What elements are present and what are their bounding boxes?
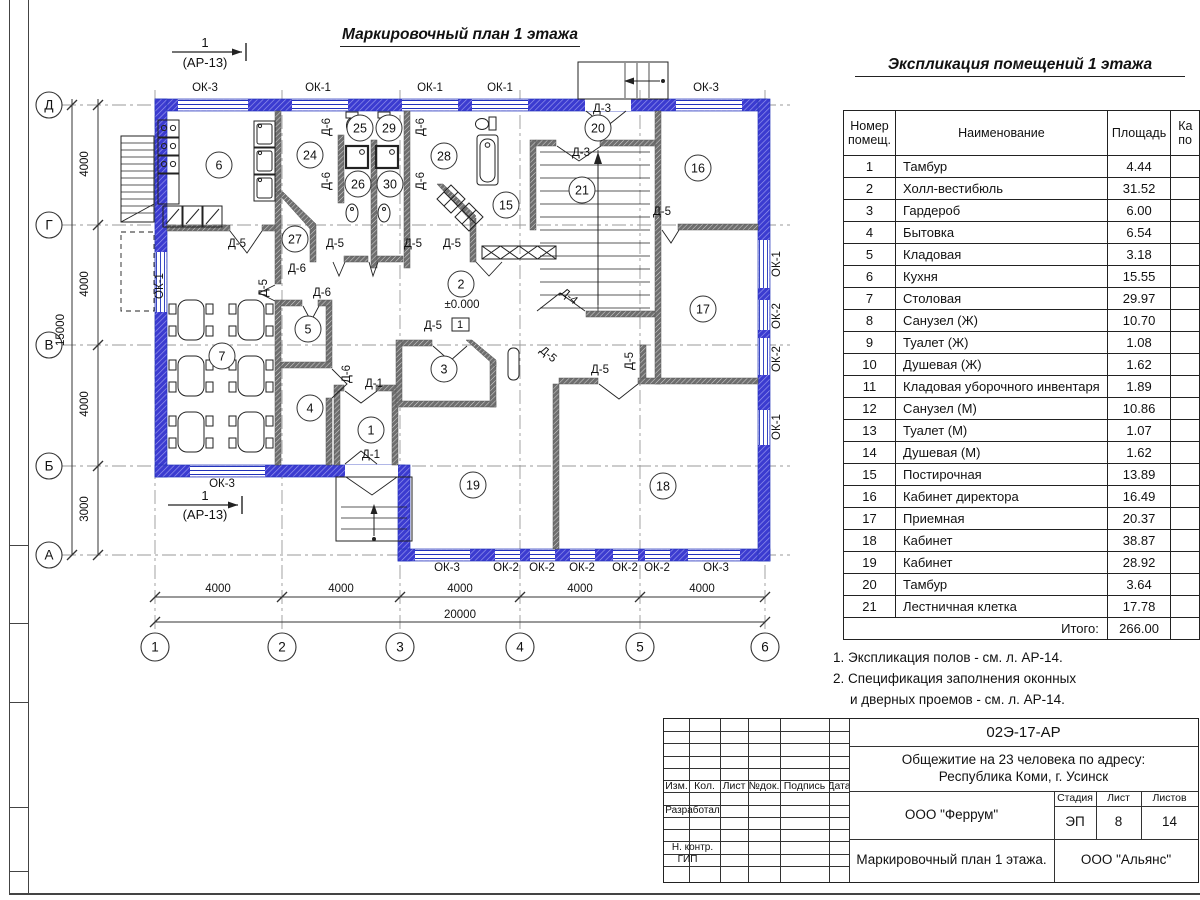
room-name-cell: Приемная <box>896 508 1108 530</box>
tap <box>258 151 261 154</box>
axis-label: Б <box>45 459 54 474</box>
plan-label: ОК-2 <box>612 562 638 574</box>
door-opening <box>345 465 398 477</box>
porch-arrowhead <box>371 504 378 514</box>
chair <box>229 416 236 426</box>
room-name-cell: Душевая (М) <box>896 442 1108 464</box>
plan-label: ОК-3 <box>703 562 729 574</box>
interior-wall <box>559 378 598 384</box>
plan-label: ОК-3 <box>693 82 719 94</box>
table-row: 2Холл-вестибюль31.52 <box>844 178 1200 200</box>
room-area-cell: 31.52 <box>1107 178 1170 200</box>
room-name-cell: Холл-вестибюль <box>896 178 1108 200</box>
interior-wall <box>536 140 556 146</box>
plan-label: ОК-3 <box>434 562 460 574</box>
chair <box>206 304 213 314</box>
room-no-cell: 15 <box>844 464 896 486</box>
chair <box>169 304 176 314</box>
room-area-cell: 29.97 <box>1107 288 1170 310</box>
chair <box>169 438 176 448</box>
chair <box>206 326 213 336</box>
door-leaf <box>333 262 345 276</box>
room-no-cell: 6 <box>844 266 896 288</box>
interior-wall <box>377 256 403 262</box>
room-cut-cell <box>1171 398 1200 420</box>
plan-label: Д-5 <box>653 206 671 218</box>
room-area-cell: 20.37 <box>1107 508 1170 530</box>
axis-label: 2 <box>278 640 286 655</box>
section-marker-arrow <box>228 502 238 509</box>
interior-wall <box>655 111 661 384</box>
door-leaf <box>345 391 377 403</box>
plan-label: Д-6 <box>321 172 333 190</box>
room-area-cell: 4.44 <box>1107 156 1170 178</box>
radiator <box>508 348 519 380</box>
sheet-title: Маркировочный план 1 этажа. <box>849 839 1054 882</box>
tap <box>351 208 354 211</box>
interior-wall <box>281 300 302 306</box>
interior-wall <box>490 362 496 407</box>
interior-wall <box>553 384 559 549</box>
plan-label: ОК-3 <box>209 478 235 490</box>
axis-label: В <box>44 338 53 353</box>
total-label: Итого: <box>844 618 1108 640</box>
plan-label: Д-5 <box>228 238 246 250</box>
room-cut-cell <box>1171 156 1200 178</box>
chair <box>266 304 273 314</box>
room-no-cell: 12 <box>844 398 896 420</box>
chair <box>169 360 176 370</box>
table-row: 3Гардероб6.00 <box>844 200 1200 222</box>
plan-label: Д-6 <box>415 172 427 190</box>
room-name-cell: Бытовка <box>896 222 1108 244</box>
plan-label: 4000 <box>447 583 473 595</box>
floor-plan: ДГВБА123456 1234567151617181920212425262… <box>0 0 820 680</box>
room-name-cell: Санузел (Ж) <box>896 310 1108 332</box>
stage-value: ЭП <box>1054 806 1096 839</box>
plan-label: Д-5 <box>258 279 270 297</box>
title-block: Изм.Кол.Лист№док.ПодписьДатаРазработалН.… <box>663 718 1199 883</box>
sheets-label: Листов <box>1141 791 1198 806</box>
room-number: 20 <box>591 121 605 135</box>
arrow-dot <box>372 537 376 541</box>
axis-label: А <box>44 548 53 563</box>
stage-label: Стадия <box>1054 791 1096 806</box>
interior-wall <box>326 306 332 362</box>
room-number: 28 <box>437 149 451 163</box>
room-number: 4 <box>307 401 314 415</box>
dashed-platform <box>121 232 154 311</box>
tap <box>258 178 261 181</box>
plan-label: Д-5 <box>404 238 422 250</box>
plan-label: Д-6 <box>288 263 306 275</box>
plan-label: Д-6 <box>313 287 331 299</box>
table-row: 17Приемная20.37 <box>844 508 1200 530</box>
room-cut-cell <box>1171 354 1200 376</box>
interior-wall <box>638 378 758 384</box>
room-name-cell: Туалет (Ж) <box>896 332 1108 354</box>
room-area-cell: 16.49 <box>1107 486 1170 508</box>
room-area-cell: 13.89 <box>1107 464 1170 486</box>
interior-wall <box>600 140 655 146</box>
axis-label: Д <box>44 98 53 113</box>
exterior-stair <box>121 136 154 222</box>
contractor-org: ООО "Альянс" <box>1054 839 1198 882</box>
room-no-cell: 17 <box>844 508 896 530</box>
room-number: 5 <box>305 322 312 336</box>
title-block-line <box>664 866 849 867</box>
interior-wall <box>640 345 646 378</box>
room-no-cell: 20 <box>844 574 896 596</box>
frame-margin-line <box>9 702 28 703</box>
drain <box>360 150 365 155</box>
interior-wall <box>318 300 332 306</box>
frame-bottom <box>9 893 1200 895</box>
plan-label: 3000 <box>79 496 91 522</box>
basin <box>378 204 390 222</box>
title-block-line <box>664 756 849 757</box>
role-label: ГИП <box>665 854 710 866</box>
table-row: 1Тамбур4.44 <box>844 156 1200 178</box>
room-number: 29 <box>382 121 396 135</box>
interior-wall <box>396 401 496 407</box>
room-no-cell: 7 <box>844 288 896 310</box>
room-no-cell: 21 <box>844 596 896 618</box>
chair <box>229 382 236 392</box>
section-marker-arrow <box>232 49 242 56</box>
room-area-cell: 1.62 <box>1107 442 1170 464</box>
signature-col-header: Лист <box>720 780 748 793</box>
table-row: 8Санузел (Ж)10.70 <box>844 310 1200 332</box>
interior-wall <box>530 140 536 230</box>
chair <box>206 438 213 448</box>
interior-wall-diagonal <box>466 340 496 367</box>
plan-label: 4000 <box>79 391 91 417</box>
interior-wall <box>334 391 340 465</box>
counter-hatch <box>166 209 179 224</box>
chair <box>229 326 236 336</box>
document-code: 02Э-17-АР <box>849 719 1198 746</box>
room-cut-cell <box>1171 376 1200 398</box>
room-number: 24 <box>303 148 317 162</box>
room-name-cell: Санузел (М) <box>896 398 1108 420</box>
table-row: 4Бытовка6.54 <box>844 222 1200 244</box>
axis-label: 5 <box>636 640 644 655</box>
room-cut-cell <box>1171 530 1200 552</box>
plan-label: Д-5 <box>443 238 461 250</box>
room-name-cell: Столовая <box>896 288 1108 310</box>
door-leaf <box>476 262 502 276</box>
title-block-line <box>664 768 849 769</box>
table-row: 14Душевая (М)1.62 <box>844 442 1200 464</box>
room-area-cell: 1.08 <box>1107 332 1170 354</box>
room-number: 21 <box>575 183 589 197</box>
axis-label: Г <box>45 218 53 233</box>
col-header-name: Наименование <box>896 111 1108 156</box>
room-cut-cell <box>1171 222 1200 244</box>
title-block-line <box>664 731 849 732</box>
room-area-cell: 10.86 <box>1107 398 1170 420</box>
chair <box>266 416 273 426</box>
table-row: 11Кладовая уборочного инвентаря1.89 <box>844 376 1200 398</box>
interior-wall <box>275 300 281 465</box>
drain <box>485 143 490 148</box>
table-row: 21Лестничная клетка17.78 <box>844 596 1200 618</box>
interior-wall <box>344 256 368 262</box>
object-name: Общежитие на 23 человека по адресу:Респу… <box>849 746 1198 791</box>
interior-wall <box>281 362 332 368</box>
room-cut-cell <box>1171 266 1200 288</box>
room-cut-cell <box>1171 332 1200 354</box>
room-cut-cell <box>1171 486 1200 508</box>
title-block-line <box>664 817 849 818</box>
bathtub-inner <box>480 139 495 182</box>
axis-label: 4 <box>516 640 524 655</box>
counter-hatch <box>186 209 199 224</box>
chair <box>266 326 273 336</box>
axis-label: 1 <box>151 640 159 655</box>
col-header-area: Площадь <box>1107 111 1170 156</box>
table-row: 19Кабинет28.92 <box>844 552 1200 574</box>
room-area-cell: 15.55 <box>1107 266 1170 288</box>
shower-tray <box>346 146 368 168</box>
chair <box>206 382 213 392</box>
plan-label: ОК-3 <box>192 82 218 94</box>
signature-col-header: Дата <box>829 780 849 793</box>
room-no-cell: 18 <box>844 530 896 552</box>
note-line: 1. Экспликация полов - см. л. АР-14. <box>833 648 1173 669</box>
table <box>178 300 204 340</box>
room-cut-cell <box>1171 574 1200 596</box>
chair <box>206 416 213 426</box>
room-cut-cell <box>1171 288 1200 310</box>
table-row: 13Туалет (М)1.07 <box>844 420 1200 442</box>
porch-arrowhead <box>624 78 634 85</box>
shower-tray <box>376 146 398 168</box>
role-label: Разработал <box>665 805 720 817</box>
room-number: 18 <box>656 479 670 493</box>
plan-label: 4000 <box>205 583 231 595</box>
counter-hatch <box>206 209 219 224</box>
room-cut-cell <box>1171 596 1200 618</box>
axis-label: 3 <box>396 640 404 655</box>
room-no-cell: 14 <box>844 442 896 464</box>
sheet: { "sheet":{ "plan_title":"Маркировочный … <box>0 0 1200 900</box>
room-no-cell: 13 <box>844 420 896 442</box>
designer-org: ООО "Феррум" <box>849 791 1054 839</box>
room-no-cell: 8 <box>844 310 896 332</box>
room-number: 25 <box>353 121 367 135</box>
plan-label: 4000 <box>79 271 91 297</box>
room-area-cell: 17.78 <box>1107 596 1170 618</box>
room-number: 1 <box>368 423 375 437</box>
plan-label: 4000 <box>567 583 593 595</box>
signature-col-header: Подпись <box>780 780 829 793</box>
total-value: 266.00 <box>1107 618 1170 640</box>
room-no-cell: 1 <box>844 156 896 178</box>
plan-label: ОК-2 <box>493 562 519 574</box>
room-name-cell: Гардероб <box>896 200 1108 222</box>
room-number: 6 <box>216 158 223 172</box>
room-name-cell: Постирочная <box>896 464 1108 486</box>
room-name-cell: Кладовая уборочного инвентаря <box>896 376 1108 398</box>
signature-col-header: Изм. <box>664 780 689 793</box>
note-line: 2. Спецификация заполнения оконных <box>833 669 1173 690</box>
tap <box>383 208 386 211</box>
room-number: 15 <box>499 198 513 212</box>
plan-label: Д-6 <box>321 118 333 136</box>
plan-label: 1 <box>457 319 463 331</box>
plan-label: ±0.000 <box>444 299 479 311</box>
room-area-cell: 28.92 <box>1107 552 1170 574</box>
door-leaf <box>662 230 679 243</box>
room-cut-cell <box>1171 310 1200 332</box>
room-number: 3 <box>441 362 448 376</box>
plan-label: ОК-1 <box>154 273 166 299</box>
table-row: 7Столовая29.97 <box>844 288 1200 310</box>
toilet-tank <box>489 117 496 130</box>
room-number: 19 <box>466 478 480 492</box>
door-leaf <box>599 384 638 399</box>
plan-label: 15000 <box>55 314 67 346</box>
plan-label: Д-6 <box>415 118 427 136</box>
room-no-cell: 16 <box>844 486 896 508</box>
chair <box>169 416 176 426</box>
table-total-row: Итого: 266.00 <box>844 618 1200 640</box>
room-no-cell: 19 <box>844 552 896 574</box>
room-no-cell: 2 <box>844 178 896 200</box>
room-no-cell: 10 <box>844 354 896 376</box>
plan-label: ОК-1 <box>771 251 783 277</box>
table-row: 5Кладовая3.18 <box>844 244 1200 266</box>
chair <box>266 438 273 448</box>
signature-col-header: Кол. <box>689 780 720 793</box>
table-title: Экспликация помещений 1 этажа <box>855 56 1185 77</box>
plan-label: 4000 <box>328 583 354 595</box>
plan-label: Д-3 <box>572 147 590 159</box>
room-area-cell: 3.64 <box>1107 574 1170 596</box>
basin <box>346 204 358 222</box>
room-no-cell: 5 <box>844 244 896 266</box>
room-area-cell: 1.89 <box>1107 376 1170 398</box>
plan-label: 1 <box>201 35 208 50</box>
plan-label: 1 <box>201 488 208 503</box>
plan-label: ОК-2 <box>771 303 783 329</box>
plan-label: Д-5 <box>326 238 344 250</box>
notes: 1. Экспликация полов - см. л. АР-14.2. С… <box>833 648 1173 711</box>
room-area-cell: 1.62 <box>1107 354 1170 376</box>
note-line: и дверных проемов - см. л. АР-14. <box>850 690 1173 711</box>
interior-wall <box>310 225 316 262</box>
plan-label: Д-1 <box>365 378 383 390</box>
plan-label: ОК-2 <box>529 562 555 574</box>
plan-label: ОК-2 <box>644 562 670 574</box>
room-cut-cell <box>1171 442 1200 464</box>
room-no-cell: 3 <box>844 200 896 222</box>
room-schedule-table: Номер помещ. Наименование Площадь Капо 1… <box>843 110 1200 640</box>
room-area-cell: 6.00 <box>1107 200 1170 222</box>
room-name-cell: Кабинет директора <box>896 486 1108 508</box>
room-name-cell: Лестничная клетка <box>896 596 1108 618</box>
plan-label: Д-5 <box>624 352 636 370</box>
room-area-cell: 10.70 <box>1107 310 1170 332</box>
room-cut-cell <box>1171 244 1200 266</box>
axis-grid: ДГВБА123456 <box>36 90 790 661</box>
plan-label: ОК-1 <box>771 414 783 440</box>
drain <box>390 150 395 155</box>
interior-wall <box>275 192 281 284</box>
door-leaf <box>346 477 397 495</box>
room-no-cell: 11 <box>844 376 896 398</box>
room-cut-cell <box>1171 178 1200 200</box>
interior-wall <box>326 398 332 465</box>
burner <box>170 143 175 148</box>
room-name-cell: Кабинет <box>896 552 1108 574</box>
interior-wall <box>586 311 655 317</box>
room-number: 2 <box>458 277 465 291</box>
chair <box>229 438 236 448</box>
interior-wall <box>275 111 281 192</box>
chair <box>229 304 236 314</box>
frame-margin-line <box>9 871 28 872</box>
room-cut-cell <box>1171 464 1200 486</box>
plan-label: Д-3 <box>593 103 611 115</box>
arrow-dot <box>661 79 665 83</box>
exterior-wall <box>398 465 410 561</box>
chair <box>169 382 176 392</box>
table <box>178 412 204 452</box>
title-block-line <box>664 829 849 830</box>
room-area-cell: 1.07 <box>1107 420 1170 442</box>
table-row: 10Душевая (Ж)1.62 <box>844 354 1200 376</box>
plan-label: ОК-2 <box>569 562 595 574</box>
room-name-cell: Кабинет <box>896 530 1108 552</box>
stair-arrowhead <box>594 152 602 164</box>
room-cut-cell <box>1171 552 1200 574</box>
plan-label: Д-5 <box>424 320 442 332</box>
axis-label: 6 <box>761 640 769 655</box>
plan-label: (АР-13) <box>183 507 228 522</box>
col-header-number: Номер помещ. <box>844 111 896 156</box>
plan-label: 20000 <box>444 609 476 621</box>
room-name-cell: Тамбур <box>896 156 1108 178</box>
interior-wall <box>402 340 432 346</box>
plan-label: 4000 <box>79 151 91 177</box>
signature-col-header: №док. <box>748 780 780 793</box>
table <box>238 300 264 340</box>
plan-label: Д-5 <box>591 364 609 376</box>
plan-label: Д-5 <box>537 344 559 365</box>
role-label: Н. контр. <box>665 841 720 854</box>
room-name-cell: Тамбур <box>896 574 1108 596</box>
room-name-cell: Кладовая <box>896 244 1108 266</box>
room-no-cell: 4 <box>844 222 896 244</box>
plan-label: (АР-13) <box>183 55 228 70</box>
interior-wall <box>167 225 230 231</box>
room-no-cell: 9 <box>844 332 896 354</box>
interior-wall-diagonal <box>277 192 316 230</box>
table-row: 12Санузел (М)10.86 <box>844 398 1200 420</box>
toilet-bowl <box>476 119 489 130</box>
frame-margin-line <box>9 807 28 808</box>
plan-label: Д-6 <box>341 365 353 383</box>
sheets-total: 14 <box>1141 806 1198 839</box>
room-number: 17 <box>696 302 710 316</box>
table <box>238 412 264 452</box>
room-name-cell: Кухня <box>896 266 1108 288</box>
table-row: 6Кухня15.55 <box>844 266 1200 288</box>
table <box>238 356 264 396</box>
